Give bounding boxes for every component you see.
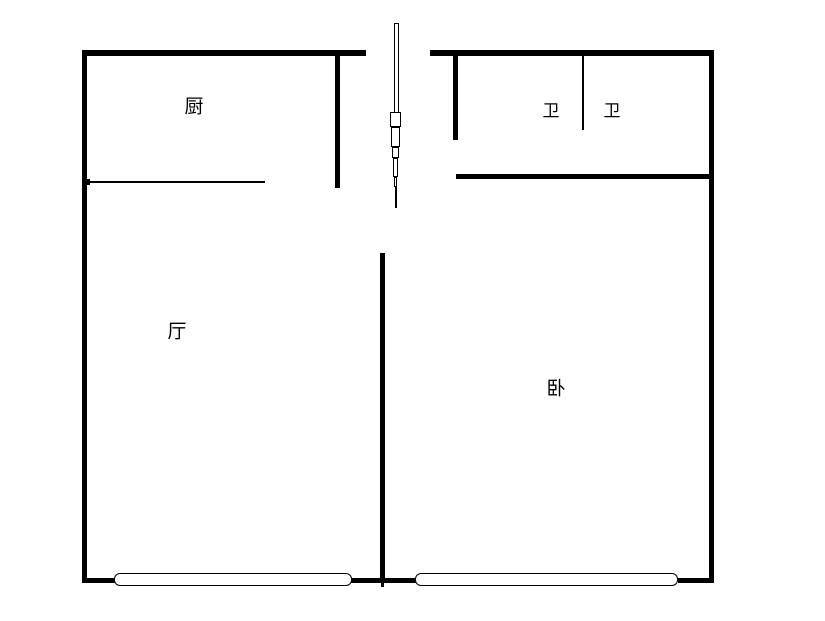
room-label-living-room: 厅 [167,323,186,342]
entry-door-symbol-seg-6 [395,187,397,208]
room-label-bathroom-right: 卫 [604,104,621,121]
entry-door-symbol-seg-3 [392,147,399,158]
entry-door-symbol-seg-5 [394,177,397,187]
line-kitchen-counter-line [86,181,265,183]
room-label-bedroom: 卧 [546,380,565,399]
wall-bath-bottom-wall [456,174,714,179]
entry-door-symbol-seg-1 [390,112,401,127]
window-living-room [114,573,352,586]
wall-bottom-wall-left [82,578,116,583]
wall-top-wall-right [430,50,714,56]
line-kitchen-counter-tick [85,179,90,185]
wall-bottom-wall-right [678,578,714,583]
wall-kitchen-partition [335,56,340,188]
entry-door-symbol-seg-4 [393,158,398,177]
wall-center-partition [380,253,385,583]
entry-door-symbol-seg-2 [391,127,400,147]
wall-left-wall [82,50,87,583]
line-bath-divider-line [582,53,584,130]
entry-door-symbol-seg-0 [394,23,399,113]
wall-right-wall [709,50,714,583]
wall-bottom-wall-center [350,578,417,583]
room-label-kitchen: 厨 [184,98,203,117]
wall-center-partition-tip [381,583,384,587]
window-bedroom [415,573,678,586]
wall-bath-entry-partition [453,56,458,140]
floor-plan-canvas: 厨卫卫厅卧 [0,0,825,621]
room-label-bathroom-left: 卫 [543,104,560,121]
wall-top-wall-left [82,50,366,56]
